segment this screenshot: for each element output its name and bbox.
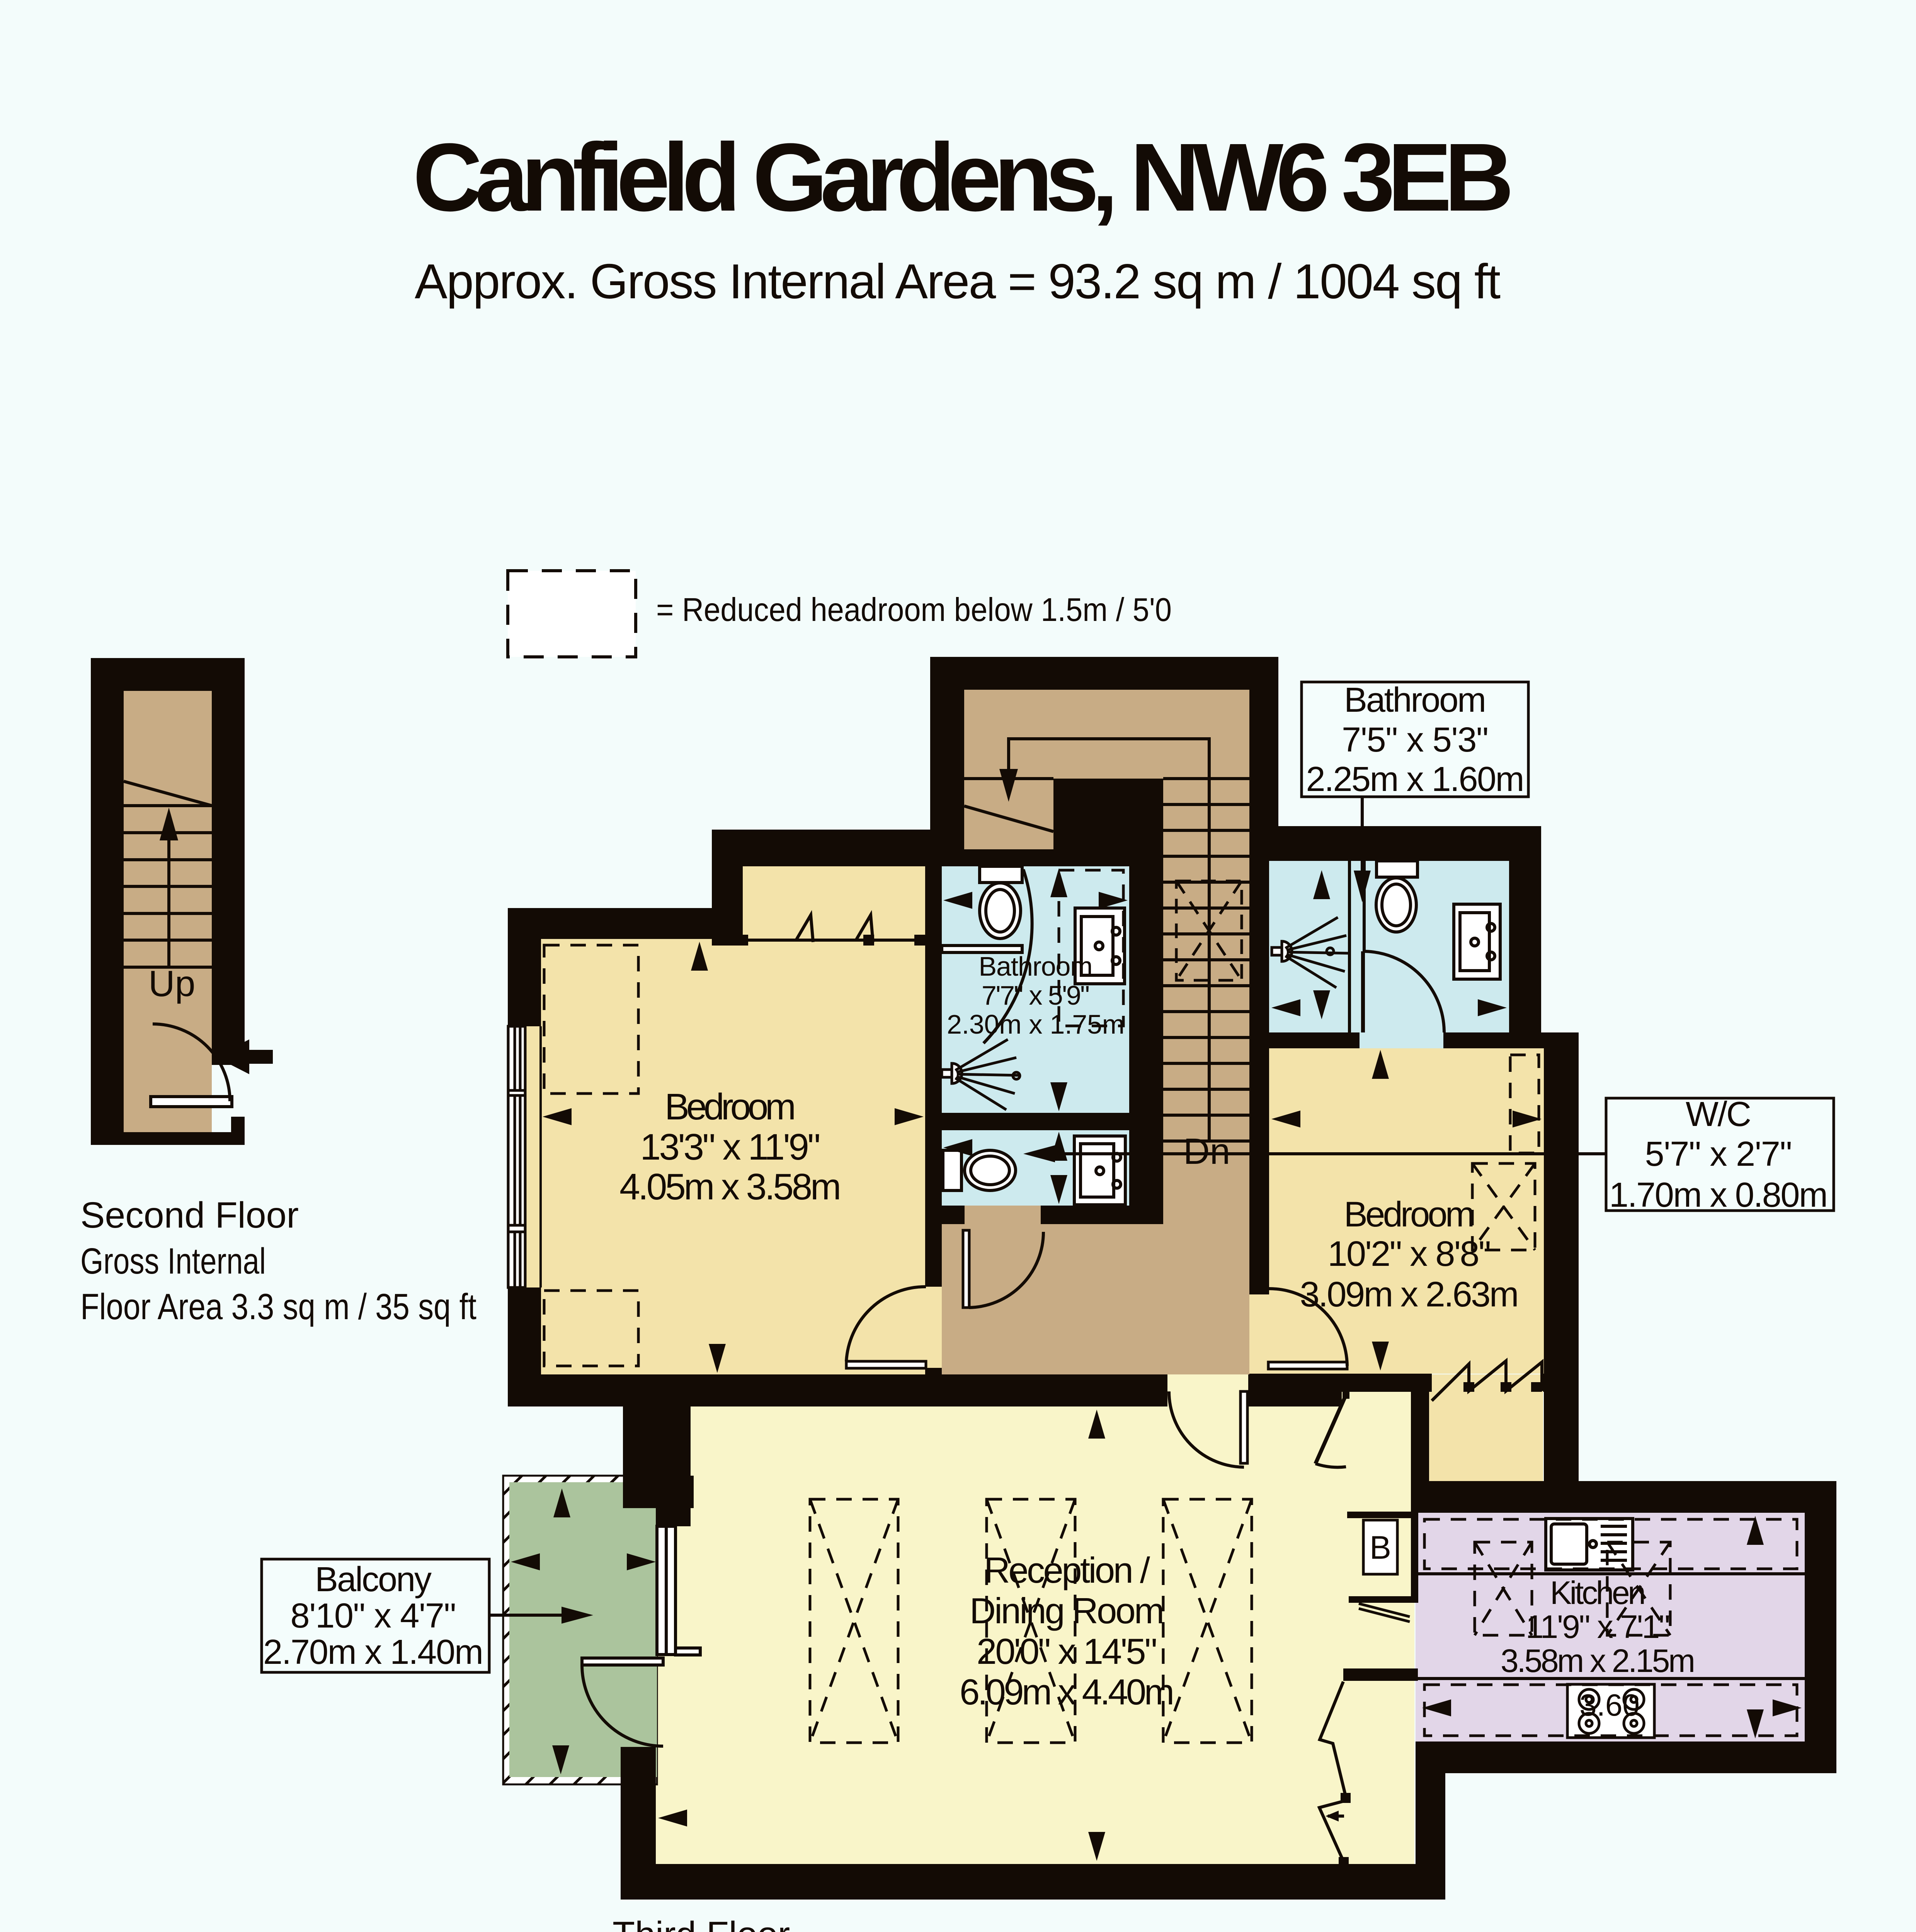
svg-text:W/C: W/C (1686, 1095, 1751, 1134)
svg-text:Third Floor: Third Floor (613, 1914, 790, 1932)
svg-text:5'7" x 2'7": 5'7" x 2'7" (1645, 1135, 1792, 1173)
svg-text:3.58m x 2.15m: 3.58m x 2.15m (1501, 1643, 1695, 1679)
svg-text:6.09m x 4.40m: 6.09m x 4.40m (960, 1672, 1174, 1712)
svg-text:Gross Internal: Gross Internal (80, 1241, 266, 1282)
svg-text:Balcony: Balcony (315, 1560, 432, 1599)
svg-text:Approx. Gross Internal Area =: Approx. Gross Internal Area = 93.2 sq m … (415, 254, 1501, 309)
svg-text:Second Floor: Second Floor (80, 1195, 299, 1236)
svg-text:13'3" x 11'9": 13'3" x 11'9" (640, 1126, 821, 1168)
svg-text:Canfield Gardens, NW6 3EB: Canfield Gardens, NW6 3EB (413, 123, 1514, 231)
svg-text:Reception /: Reception / (984, 1550, 1150, 1590)
svg-text:2.25m x 1.60m: 2.25m x 1.60m (1306, 760, 1525, 799)
svg-text:1.70m x 0.80m: 1.70m x 0.80m (1609, 1176, 1828, 1214)
svg-text:8'10" x 4'7": 8'10" x 4'7" (291, 1597, 456, 1635)
svg-text:Bedroom: Bedroom (665, 1086, 796, 1128)
svg-text:Kitchen: Kitchen (1550, 1575, 1646, 1611)
svg-text:Dn: Dn (1183, 1131, 1230, 1172)
svg-text:20'0" x 14'5": 20'0" x 14'5" (977, 1631, 1157, 1672)
svg-text:3.09m x 2.63m: 3.09m x 2.63m (1300, 1275, 1519, 1314)
svg-text:Bathroom: Bathroom (979, 951, 1093, 981)
svg-text:7'5" x 5'3": 7'5" x 5'3" (1342, 721, 1489, 759)
svg-text:Bathroom: Bathroom (1344, 681, 1486, 719)
svg-text:10'2" x 8'8": 10'2" x 8'8" (1328, 1234, 1491, 1274)
svg-text:B: B (1370, 1529, 1391, 1566)
svg-text:2.30m x 1.75m: 2.30m x 1.75m (947, 1009, 1125, 1039)
svg-text:Floor Area 3.3 sq m / 35 sq ft: Floor Area 3.3 sq m / 35 sq ft (80, 1286, 476, 1327)
svg-text:11'9" x 7'1": 11'9" x 7'1" (1526, 1609, 1670, 1645)
svg-text:Bedroom: Bedroom (1344, 1195, 1475, 1234)
svg-text:2.70m x 1.40m: 2.70m x 1.40m (263, 1633, 483, 1672)
svg-text:4.05m x 3.58m: 4.05m x 3.58m (619, 1166, 841, 1207)
svg-text:= Reduced headroom below 1.5m: = Reduced headroom below 1.5m / 5'0 (656, 592, 1172, 628)
svg-text:Dining Room: Dining Room (970, 1590, 1164, 1631)
svg-text:Up: Up (148, 963, 195, 1004)
svg-text:3.60: 3.60 (1579, 1688, 1640, 1722)
svg-text:7'7" x 5'9": 7'7" x 5'9" (982, 980, 1090, 1010)
